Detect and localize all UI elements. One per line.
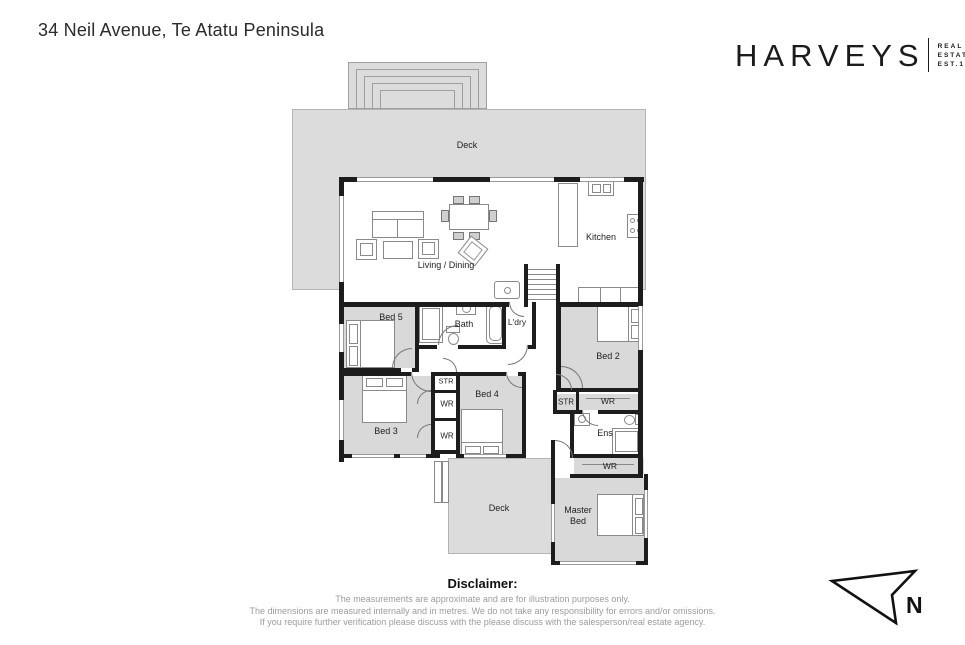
wall-segment	[524, 264, 528, 307]
window	[357, 177, 433, 182]
sofa-back-line	[373, 219, 423, 220]
armchair-inner	[360, 243, 373, 256]
window	[560, 561, 636, 565]
room-label-str-left: STR	[439, 377, 454, 386]
sofa-divider	[397, 220, 398, 238]
stair-tread	[528, 269, 556, 270]
wall-segment	[576, 390, 579, 412]
room-label-master-bed: Master Bed	[555, 505, 601, 528]
dining-chair	[489, 210, 497, 222]
shower-inner	[422, 308, 440, 340]
wall-segment	[431, 372, 435, 454]
wall-segment	[532, 302, 536, 349]
wall-segment	[570, 454, 643, 458]
kitchen-sink-drainer	[603, 184, 611, 193]
room-label-wr-left-bottom: WR	[440, 432, 453, 441]
window	[400, 454, 426, 458]
armchair-inner	[422, 242, 435, 255]
sofa	[372, 211, 424, 238]
deck-step	[442, 461, 449, 503]
window	[339, 324, 344, 352]
bed-head-line	[362, 390, 407, 391]
dining-chair	[453, 232, 464, 240]
deck-step	[434, 461, 442, 503]
deck-stair-step	[380, 90, 455, 109]
room-label-wr-right-bottom: WR	[603, 461, 617, 471]
dining-table	[449, 204, 489, 230]
room-label-deck-top: Deck	[457, 140, 478, 150]
pillow	[635, 517, 643, 534]
room-label-bed5: Bed 5	[379, 312, 403, 322]
floorplan-page: 34 Neil Avenue, Te Atatu Peninsula HARVE…	[0, 0, 965, 645]
kitchen-bench	[578, 287, 643, 303]
room-label-bed4: Bed 4	[475, 389, 499, 399]
room-label-living-dining: Living / Dining	[418, 260, 475, 270]
coffee-table	[383, 241, 413, 259]
room-label-deck-bottom: Deck	[489, 503, 510, 513]
window	[638, 306, 643, 350]
wall-segment	[570, 474, 643, 478]
stair-tread	[528, 289, 556, 290]
stair-tread	[528, 299, 556, 300]
window	[580, 177, 624, 182]
window	[339, 400, 344, 440]
pillow	[465, 446, 481, 454]
kitchen-counter	[558, 183, 578, 247]
wall-segment	[551, 440, 555, 565]
dining-chair	[441, 210, 449, 222]
window	[464, 454, 506, 458]
bed-head-line	[632, 494, 633, 536]
dining-chair	[469, 196, 480, 204]
bathtub-inner	[489, 306, 502, 341]
room-label-bed2: Bed 2	[596, 351, 620, 361]
bed-head-line	[461, 442, 503, 443]
window	[490, 177, 554, 182]
pillow	[483, 446, 499, 454]
wall-segment	[556, 264, 560, 307]
wall-segment	[598, 410, 643, 414]
kitchen-sink-bowl	[592, 184, 601, 193]
floorplan-drawing	[0, 0, 965, 645]
dining-chair	[453, 196, 464, 204]
pillow	[366, 378, 383, 387]
wall-segment	[528, 345, 536, 349]
room-label-ensuite: Ens	[597, 428, 613, 438]
wall-segment	[460, 372, 506, 376]
wall-segment	[431, 390, 459, 393]
stove-burner	[630, 218, 635, 223]
room-label-bed3: Bed 3	[374, 426, 398, 436]
stair-tread	[528, 279, 556, 280]
stair-tread	[528, 294, 556, 295]
pillow	[635, 498, 643, 515]
room-label-bath: Bath	[455, 319, 474, 329]
window	[339, 196, 344, 282]
pillow	[349, 346, 358, 366]
north-label: N	[906, 592, 923, 618]
room-label-wr-right-top: WR	[601, 396, 615, 406]
wall-segment	[415, 345, 437, 349]
pillow	[386, 378, 403, 387]
stair-tread	[528, 274, 556, 275]
stair-tread	[528, 284, 556, 285]
room-label-wr-left-top: WR	[440, 400, 453, 409]
wall-segment	[456, 372, 460, 458]
wall-segment	[522, 372, 526, 458]
bed-head-line	[628, 306, 629, 342]
window	[644, 490, 648, 538]
north-arrow-icon: N	[820, 558, 965, 643]
wall-segment	[502, 302, 506, 349]
wall-segment	[553, 410, 582, 414]
wall-segment	[415, 302, 419, 368]
wall-segment	[431, 418, 459, 421]
wall-segment	[339, 302, 509, 307]
bench-divider	[600, 287, 601, 303]
wall-segment	[458, 345, 504, 349]
room-label-laundry: L'dry	[508, 317, 526, 327]
bench-divider	[620, 287, 621, 303]
window	[352, 454, 394, 458]
ensuite-toilet-bowl	[624, 415, 635, 425]
fireplace-dial	[504, 287, 511, 294]
ensuite-shower-inner	[615, 431, 638, 452]
room-label-str-right: STR	[558, 398, 574, 407]
pillow	[349, 324, 358, 344]
bed-head-line	[360, 320, 361, 368]
stove-burner	[630, 228, 635, 233]
room-label-kitchen: Kitchen	[586, 232, 616, 242]
wall-segment	[339, 372, 411, 376]
wall-segment	[558, 302, 643, 307]
